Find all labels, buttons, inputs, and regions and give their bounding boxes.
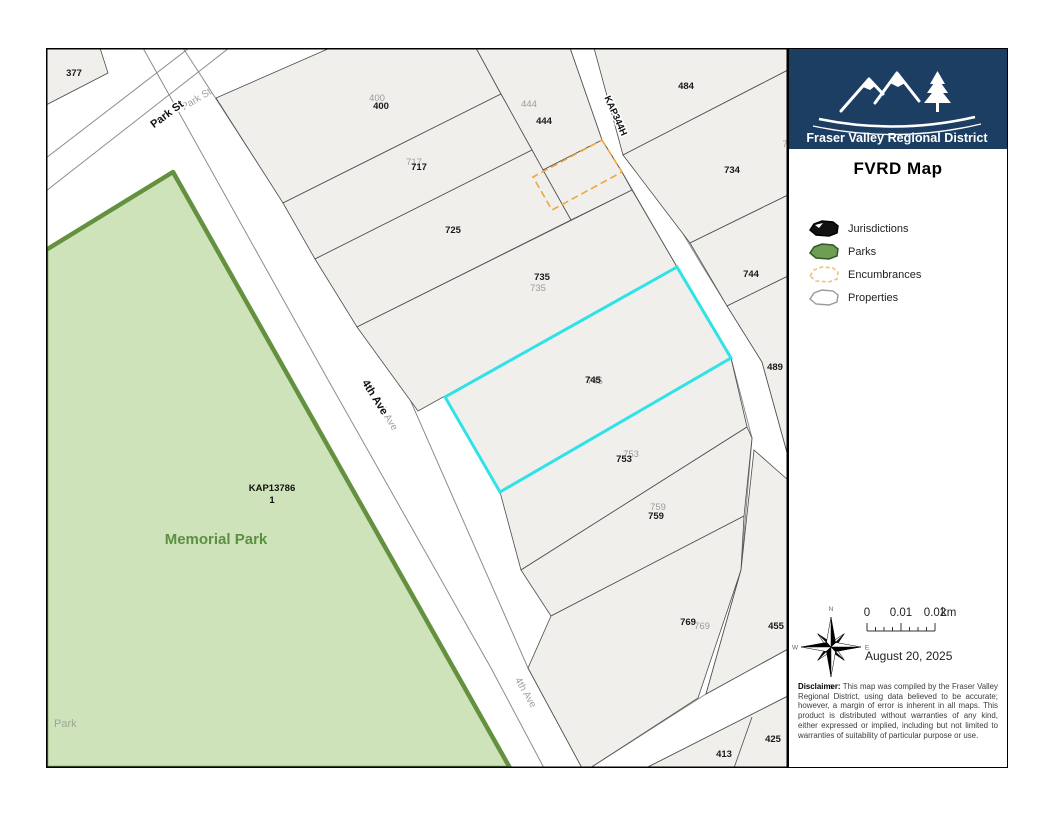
svg-text:413: 413	[716, 749, 732, 760]
svg-text:0.01: 0.01	[890, 607, 912, 619]
disclaimer-heading: Disclaimer:	[798, 682, 841, 691]
svg-text:444: 444	[536, 116, 553, 127]
svg-text:759: 759	[648, 511, 664, 522]
legend-item-encumbrances: Encumbrances	[809, 263, 921, 286]
park-corner-label: Park	[54, 718, 77, 730]
fvrd-map-export: 400 444 717 735 745 753 759 769 7 377 40…	[0, 0, 1056, 816]
svg-text:735: 735	[530, 283, 546, 294]
svg-text:377: 377	[66, 68, 82, 79]
svg-text:400: 400	[373, 101, 389, 112]
svg-text:0: 0	[864, 607, 870, 619]
scale-ruler	[867, 623, 935, 631]
svg-text:769: 769	[694, 621, 710, 632]
svg-text:455: 455	[768, 621, 785, 632]
logo-org-name: Fraser Valley Regional District	[806, 131, 988, 145]
panel-title: FVRD Map	[789, 159, 1007, 179]
properties-swatch-icon	[809, 289, 839, 306]
svg-text:717: 717	[411, 162, 427, 173]
legend-item-jurisdictions: Jurisdictions	[809, 217, 921, 240]
legend-label: Jurisdictions	[848, 223, 909, 235]
svg-text:km: km	[941, 607, 956, 619]
svg-text:769: 769	[680, 617, 696, 628]
jurisdictions-swatch-icon	[809, 220, 839, 237]
svg-text:735: 735	[534, 272, 551, 283]
fvrd-logo: Fraser Valley Regional District	[789, 49, 1007, 149]
map-canvas[interactable]: 400 444 717 735 745 753 759 769 7 377 40…	[46, 48, 788, 768]
svg-text:753: 753	[616, 454, 632, 465]
encumbrances-swatch-icon	[809, 266, 839, 283]
legend: Jurisdictions Parks Encumbrances Propert…	[809, 217, 921, 309]
park-name-label: Memorial Park	[165, 531, 268, 548]
plan-lot-label: 1	[269, 495, 275, 506]
svg-text:444: 444	[521, 99, 537, 110]
svg-text:N: N	[829, 606, 834, 613]
svg-text:744: 744	[743, 269, 760, 280]
logo-mountains-icon	[841, 73, 919, 111]
logo-snowcap-icon	[863, 74, 905, 90]
legend-label: Parks	[848, 246, 876, 258]
disclaimer-text: Disclaimer: This map was compiled by the…	[798, 682, 998, 740]
legend-item-parks: Parks	[809, 240, 921, 263]
legend-label: Properties	[848, 292, 898, 304]
scale-bar: 0 0.01 0.02 km	[859, 605, 969, 646]
svg-text:745: 745	[585, 375, 602, 386]
svg-text:425: 425	[765, 734, 782, 745]
svg-text:734: 734	[724, 165, 741, 176]
svg-text:484: 484	[678, 81, 695, 92]
map-side-panel: Fraser Valley Regional District FVRD Map…	[788, 48, 1008, 768]
svg-text:725: 725	[445, 225, 462, 236]
svg-text:W: W	[792, 645, 799, 652]
parks-swatch-icon	[809, 243, 839, 260]
legend-label: Encumbrances	[848, 269, 921, 281]
logo-tree-icon	[924, 71, 951, 112]
svg-text:489: 489	[767, 362, 783, 373]
plan-number-label: KAP13786	[249, 483, 295, 494]
map-date: August 20, 2025	[865, 649, 952, 663]
legend-item-properties: Properties	[809, 286, 921, 309]
